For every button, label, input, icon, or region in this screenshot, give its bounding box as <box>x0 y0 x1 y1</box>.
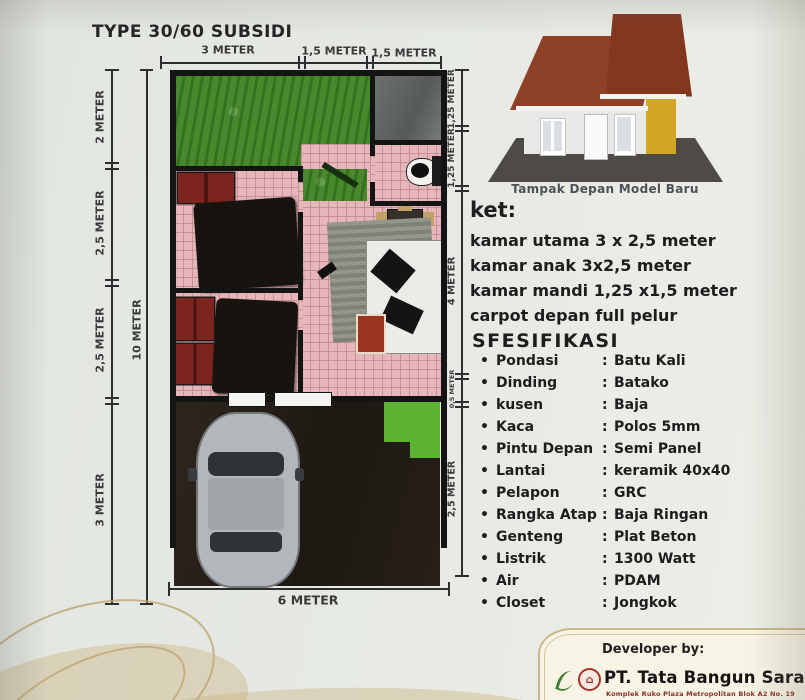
dim-tick <box>105 162 119 164</box>
spec-value: Semi Panel <box>614 441 701 457</box>
car-mirror-right <box>295 468 304 481</box>
spec-label: Dinding <box>496 375 602 391</box>
render-window-left-glass <box>543 121 551 151</box>
spec-value: Plat Beton <box>614 529 697 545</box>
developer-address: Komplek Ruko Plaza Metropolitan Blok A2 … <box>606 690 795 698</box>
spec-heading: SFESIFIKASI <box>472 330 619 352</box>
carport-green-step <box>410 442 440 458</box>
spec-row: •Pondasi:Batu Kali <box>480 353 730 375</box>
dim-tick <box>304 56 306 69</box>
dim-tick <box>455 373 469 375</box>
dim-line-right <box>461 70 463 577</box>
dim-tick <box>455 69 469 71</box>
dim-label-left-4: 3 METER <box>94 473 107 526</box>
dim-label-right-2: 1,25 METER <box>447 128 457 188</box>
spec-label: Pintu Depan <box>496 441 602 457</box>
car-mirror-left <box>188 468 197 481</box>
dim-tick <box>105 285 119 287</box>
render-door <box>584 114 608 160</box>
spec-value: 1300 Watt <box>614 551 696 567</box>
dim-tick <box>105 69 119 71</box>
bullet: • <box>480 463 496 479</box>
dim-label-right-3: 4 METER <box>447 257 458 306</box>
spec-label: Pondasi <box>496 353 602 369</box>
spec-row: •Pintu Depan:Semi Panel <box>480 441 730 463</box>
kids-cabinet-1 <box>176 298 214 340</box>
bullet: • <box>480 375 496 391</box>
wall-left <box>170 70 176 548</box>
master-bed <box>193 197 301 292</box>
spec-value: Baja <box>614 397 648 413</box>
wall-rear <box>170 70 447 76</box>
wall-garden-bedroom <box>170 166 303 171</box>
dim-tick <box>455 406 469 408</box>
spec-colon: : <box>602 551 614 567</box>
spec-row: •Lantai:keramik 40x40 <box>480 463 730 485</box>
spec-label: Pelapon <box>496 485 602 501</box>
dim-label-left-2: 2,5 METER <box>94 190 107 255</box>
render-fascia <box>516 106 648 111</box>
kids-cabinet-2 <box>176 344 214 384</box>
dim-tick <box>140 69 153 71</box>
dim-tick <box>105 279 119 281</box>
bullet: • <box>480 551 496 567</box>
spec-colon: : <box>602 595 614 611</box>
toilet-seat <box>411 163 429 178</box>
bullet: • <box>480 573 496 589</box>
dim-tick <box>455 190 469 192</box>
dim-tick <box>455 378 469 380</box>
dim-tick <box>455 125 469 127</box>
spec-row: •Genteng:Plat Beton <box>480 529 730 551</box>
dim-label-bottom: 6 METER <box>278 593 339 608</box>
bullet: • <box>480 419 496 435</box>
spec-value: GRC <box>614 485 647 501</box>
spec-row: •kusen:Baja <box>480 397 730 419</box>
wardrobe <box>178 173 234 203</box>
dim-tick <box>455 130 469 132</box>
spec-colon: : <box>602 573 614 589</box>
dim-tick <box>455 575 469 577</box>
spec-label: Genteng <box>496 529 602 545</box>
bullet: • <box>480 441 496 457</box>
spec-colon: : <box>602 463 614 479</box>
dim-label-top-1: 3 METER <box>201 44 254 57</box>
spec-label: Lantai <box>496 463 602 479</box>
spec-colon: : <box>602 375 614 391</box>
floor-plan <box>170 70 447 590</box>
bullet: • <box>480 529 496 545</box>
spec-colon: : <box>602 485 614 501</box>
render-window-left-glass <box>554 121 562 151</box>
terrace-area <box>373 74 443 142</box>
front-window <box>228 392 266 407</box>
dim-label-left-1: 2 METER <box>94 90 107 143</box>
spec-colon: : <box>602 529 614 545</box>
wall-between-bedrooms <box>170 288 303 293</box>
developer-name: PT. Tata Bangun Sarana <box>604 668 805 687</box>
spec-row: •Dinding:Batako <box>480 375 730 397</box>
render-yellow-panel <box>646 96 676 154</box>
house-render <box>488 10 723 182</box>
developer-heading: Developer by: <box>602 642 704 657</box>
render-roof-right <box>600 14 692 100</box>
spec-row: •Listrik:1300 Watt <box>480 551 730 573</box>
ket-heading: ket: <box>470 198 516 222</box>
front-door <box>274 392 332 407</box>
dim-label-top-2: 1,5 METER <box>301 45 366 58</box>
dim-label-right-1: 1,25 METER <box>447 69 457 129</box>
dim-label-top-3: 1,5 METER <box>371 47 436 60</box>
spec-colon: : <box>602 441 614 457</box>
spec-colon: : <box>602 397 614 413</box>
dim-tick <box>440 56 442 69</box>
dim-tick <box>160 56 162 69</box>
spec-value: Batu Kali <box>614 353 686 369</box>
render-window-right-glass <box>617 117 631 151</box>
ket-line-4: carpot depan full pelur <box>470 306 677 325</box>
carport-green-patch <box>384 402 440 442</box>
car-windshield <box>208 452 284 476</box>
developer-card: Developer by: ⌂ PT. Tata Bangun Sarana K… <box>538 628 805 700</box>
dim-tick <box>298 56 300 69</box>
dim-tick <box>105 397 119 399</box>
bullet: • <box>480 595 496 611</box>
dim-line-top <box>160 62 440 64</box>
toilet-tank <box>432 156 441 186</box>
spec-row: •Closet:Jongkok <box>480 595 730 617</box>
spec-value: Baja Ringan <box>614 507 708 523</box>
render-caption: Tampak Depan Model Baru <box>490 182 720 196</box>
spec-colon: : <box>602 419 614 435</box>
dim-tick <box>105 168 119 170</box>
bullet: • <box>480 353 496 369</box>
ket-line-2: kamar anak 3x2,5 meter <box>470 256 691 275</box>
bullet: • <box>480 485 496 501</box>
bullet: • <box>480 397 496 413</box>
render-fascia-right <box>600 94 686 99</box>
wall-terrace <box>370 70 375 144</box>
spec-row: •Rangka Atap:Baja Ringan <box>480 507 730 529</box>
wall-bathroom-top <box>370 140 444 145</box>
dim-tick <box>105 403 119 405</box>
dim-label-left-3: 2,5 METER <box>94 307 107 372</box>
spec-value: Jongkok <box>614 595 677 611</box>
spec-label: Listrik <box>496 551 602 567</box>
spec-row: •Pelapon:GRC <box>480 485 730 507</box>
door-gap-master <box>298 182 303 212</box>
spec-value: Batako <box>614 375 669 391</box>
kids-bed <box>212 298 299 397</box>
car-rear-window <box>210 532 282 552</box>
bullet: • <box>480 507 496 523</box>
spec-value: PDAM <box>614 573 661 589</box>
ket-line-1: kamar utama 3 x 2,5 meter <box>470 231 716 250</box>
spec-label: Air <box>496 573 602 589</box>
spec-colon: : <box>602 353 614 369</box>
dim-tick <box>455 185 469 187</box>
dim-line-left-total <box>146 70 148 605</box>
dim-label-right-5: 2,5 METER <box>447 461 458 517</box>
page-title: TYPE 30/60 SUBSIDI <box>92 22 292 42</box>
wall-bathroom-bottom <box>370 201 444 206</box>
dim-tick <box>448 582 450 596</box>
car-roof <box>208 478 284 530</box>
spec-value: Polos 5mm <box>614 419 700 435</box>
dim-label-left-total: 10 METER <box>131 299 144 360</box>
spec-list: •Pondasi:Batu Kali •Dinding:Batako •kuse… <box>480 353 730 617</box>
spec-label: Kaca <box>496 419 602 435</box>
spec-label: Closet <box>496 595 602 611</box>
dim-line-left <box>111 70 113 605</box>
coffee-table <box>356 314 386 354</box>
door-gap-kids <box>298 300 303 330</box>
brochure-page: TYPE 30/60 SUBSIDI 3 METER 1,5 METER 1,5… <box>0 0 805 700</box>
ket-line-3: kamar mandi 1,25 x1,5 meter <box>470 281 737 300</box>
spec-label: Rangka Atap <box>496 507 602 523</box>
spec-label: kusen <box>496 397 602 413</box>
spec-row: •Kaca:Polos 5mm <box>480 419 730 441</box>
developer-logo-icon: ⌂ <box>578 668 601 691</box>
dim-label-right-4: 0,5 METER <box>448 370 456 409</box>
dim-tick <box>366 56 368 69</box>
dim-tick <box>455 401 469 403</box>
spec-row: •Air:PDAM <box>480 573 730 595</box>
spec-value: keramik 40x40 <box>614 463 730 479</box>
door-gap-bathroom <box>370 156 375 182</box>
spec-colon: : <box>602 507 614 523</box>
